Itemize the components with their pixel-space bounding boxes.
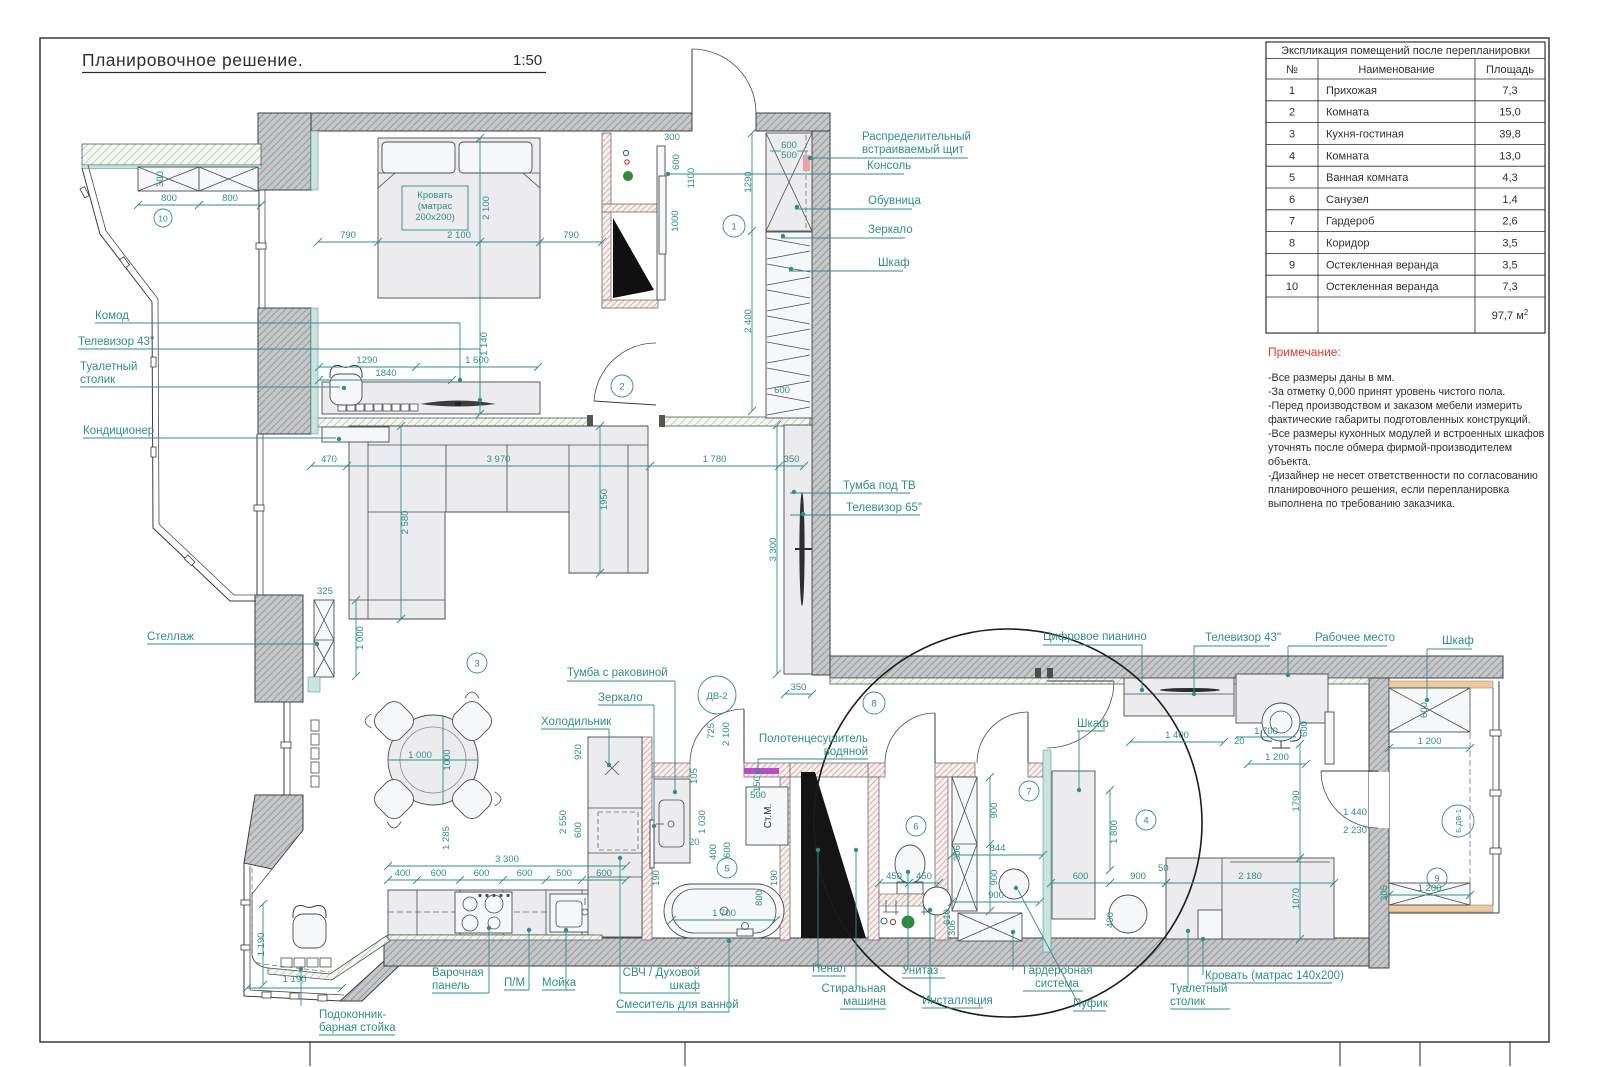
svg-text:фактические габариты подготовл: фактические габариты подготовленных конс… [1268, 414, 1531, 426]
svg-text:Тумба с раковиной: Тумба с раковиной [567, 667, 668, 679]
svg-text:Кровать: Кровать [417, 190, 452, 201]
svg-text:39,8: 39,8 [1499, 129, 1520, 141]
svg-text:2: 2 [619, 382, 624, 393]
svg-text:325: 325 [317, 586, 333, 597]
svg-text:1 285: 1 285 [441, 826, 452, 850]
svg-text:встраиваемый щит: встраиваемый щит [862, 144, 965, 156]
svg-text:7: 7 [1289, 216, 1295, 228]
svg-text:400: 400 [1105, 912, 1116, 928]
svg-text:Комната: Комната [1326, 150, 1370, 162]
svg-text:600: 600 [1299, 721, 1310, 737]
svg-text:400: 400 [708, 844, 719, 860]
svg-text:600: 600 [671, 154, 682, 170]
svg-text:790: 790 [340, 230, 356, 241]
svg-text:8: 8 [871, 699, 876, 710]
svg-text:Стеллаж: Стеллаж [147, 631, 194, 643]
svg-text:1 700: 1 700 [712, 908, 736, 919]
svg-text:1840: 1840 [375, 368, 396, 379]
svg-text:5: 5 [1289, 172, 1295, 184]
svg-text:Смеситель для ванной: Смеситель для ванной [616, 999, 739, 1011]
svg-text:1 000: 1 000 [355, 626, 366, 650]
svg-text:6: 6 [913, 822, 918, 833]
svg-text:Коридор: Коридор [1326, 238, 1369, 250]
svg-text:190: 190 [651, 870, 662, 886]
svg-text:барная стойка: барная стойка [319, 1022, 396, 1034]
svg-text:900: 900 [989, 803, 1000, 819]
svg-text:3: 3 [1289, 129, 1295, 141]
svg-text:470: 470 [321, 454, 337, 465]
svg-text:1290: 1290 [356, 355, 377, 366]
svg-text:1 000: 1 000 [408, 750, 432, 761]
svg-text:планировочного решения, если п: планировочного решения, если перепланиро… [1268, 484, 1509, 496]
svg-text:900: 900 [988, 890, 1004, 901]
svg-text:ДВ-2: ДВ-2 [706, 691, 727, 702]
svg-text:Пуфик: Пуфик [1073, 998, 1109, 1010]
svg-text:1:50: 1:50 [513, 52, 542, 69]
svg-text:600: 600 [474, 868, 490, 879]
svg-text:Б.ДВ-1: Б.ДВ-1 [1454, 809, 1463, 833]
svg-text:450: 450 [916, 871, 932, 882]
svg-text:-Перед производством и заказом: -Перед производством и заказом мебели из… [1268, 400, 1523, 412]
svg-text:600: 600 [431, 868, 447, 879]
svg-text:Телевизор 43": Телевизор 43" [1205, 632, 1281, 644]
svg-text:Полотенцесушитель: Полотенцесушитель [759, 733, 868, 745]
svg-text:2 230: 2 230 [1343, 825, 1367, 836]
svg-text:Цифровое пианино: Цифровое пианино [1043, 631, 1147, 643]
svg-text:1 400: 1 400 [1165, 730, 1189, 741]
svg-text:1 600: 1 600 [465, 355, 489, 366]
svg-text:Шкаф: Шкаф [878, 257, 910, 269]
svg-text:Телевизор 43": Телевизор 43" [78, 336, 154, 348]
svg-text:1 140: 1 140 [479, 332, 490, 356]
svg-text:800: 800 [754, 890, 765, 906]
svg-text:Планировочное решение.: Планировочное решение. [82, 50, 303, 70]
svg-text:600: 600 [517, 868, 533, 879]
svg-text:1 190: 1 190 [256, 933, 267, 957]
svg-text:2 100: 2 100 [481, 196, 492, 220]
svg-text:СВЧ / Духовой: СВЧ / Духовой [623, 967, 700, 979]
svg-text:10: 10 [1286, 281, 1298, 293]
svg-text:9: 9 [1434, 874, 1439, 885]
svg-text:20: 20 [689, 837, 700, 848]
svg-text:система: система [1035, 978, 1079, 990]
svg-text:1 200: 1 200 [1418, 736, 1442, 747]
svg-text:920: 920 [573, 744, 584, 760]
svg-text:500: 500 [750, 790, 766, 801]
svg-text:500: 500 [556, 868, 572, 879]
svg-text:Комната: Комната [1326, 107, 1370, 119]
svg-text:Остекленная веранда: Остекленная веранда [1326, 259, 1439, 271]
svg-text:(матрас: (матрас [418, 201, 453, 212]
svg-text:3: 3 [474, 659, 479, 670]
svg-text:1 030: 1 030 [697, 810, 708, 834]
svg-text:200х200): 200х200) [415, 212, 455, 223]
svg-text:Гардеробная: Гардеробная [1023, 965, 1093, 977]
svg-text:Экспликация помещений после пе: Экспликация помещений после перепланиров… [1281, 45, 1530, 57]
svg-text:1 190: 1 190 [283, 974, 307, 985]
svg-text:водяной: водяной [824, 746, 868, 758]
svg-text:97,7 м2: 97,7 м2 [1492, 308, 1529, 323]
svg-text:4: 4 [1289, 150, 1295, 162]
svg-text:Туалетный: Туалетный [80, 361, 137, 373]
svg-text:Распределительный: Распределительный [862, 131, 971, 143]
svg-text:2,6: 2,6 [1502, 216, 1517, 228]
svg-text:400: 400 [395, 868, 411, 879]
svg-text:190: 190 [769, 870, 780, 886]
svg-text:шкаф: шкаф [670, 980, 700, 992]
svg-text:столик: столик [1170, 996, 1206, 1008]
svg-text:уточнять после обмера фирмой-п: уточнять после обмера фирмой-производите… [1268, 442, 1512, 454]
svg-text:1100: 1100 [686, 168, 697, 188]
svg-text:Ст.М.: Ст.М. [763, 804, 774, 829]
svg-text:Санузел: Санузел [1326, 194, 1369, 206]
svg-text:800: 800 [161, 193, 177, 204]
svg-text:6: 6 [1289, 194, 1295, 206]
svg-text:1790: 1790 [1291, 790, 1302, 811]
svg-text:300: 300 [155, 171, 166, 187]
svg-text:Ванная комната: Ванная комната [1326, 172, 1409, 184]
svg-text:3,5: 3,5 [1502, 238, 1517, 250]
svg-text:4: 4 [1143, 816, 1148, 827]
svg-text:900: 900 [1130, 871, 1146, 882]
svg-text:1 700: 1 700 [1254, 726, 1278, 737]
svg-text:2 100: 2 100 [721, 722, 732, 746]
svg-text:305: 305 [1379, 885, 1390, 901]
svg-text:Тумба под ТВ: Тумба под ТВ [843, 480, 916, 492]
svg-text:1 800: 1 800 [1109, 820, 1120, 844]
svg-text:Холодильник: Холодильник [541, 716, 612, 728]
svg-text:Примечание:: Примечание: [1268, 345, 1341, 359]
svg-text:Туалетный: Туалетный [1170, 983, 1227, 995]
svg-text:Инсталляция: Инсталляция [922, 995, 993, 1007]
svg-text:600: 600 [722, 842, 733, 858]
svg-text:500: 500 [781, 150, 797, 161]
svg-text:2 580: 2 580 [400, 511, 411, 535]
svg-text:9: 9 [1289, 259, 1295, 271]
svg-text:20: 20 [1234, 736, 1245, 747]
svg-text:Консоль: Консоль [867, 160, 911, 172]
svg-text:3,5: 3,5 [1502, 259, 1517, 271]
svg-text:4,3: 4,3 [1502, 172, 1517, 184]
svg-text:50: 50 [1158, 863, 1169, 874]
svg-text:1950: 1950 [599, 489, 610, 510]
svg-text:Телевизор 65": Телевизор 65" [846, 502, 922, 514]
svg-text:450: 450 [886, 871, 902, 882]
svg-text:Прихожая: Прихожая [1326, 85, 1377, 97]
svg-text:1070: 1070 [1291, 888, 1302, 909]
svg-text:-За отметку 0,000 принят урове: -За отметку 0,000 принят уровень чистого… [1268, 386, 1505, 398]
svg-text:800: 800 [222, 193, 238, 204]
svg-text:600: 600 [1073, 871, 1089, 882]
svg-text:1 440: 1 440 [1343, 807, 1367, 818]
svg-text:600: 600 [1419, 702, 1430, 718]
svg-text:-Все размеры даны в мм.: -Все размеры даны в мм. [1268, 372, 1395, 384]
svg-text:Мойка: Мойка [542, 977, 577, 989]
svg-text:1: 1 [731, 222, 736, 233]
svg-text:Остекленная веранда: Остекленная веранда [1326, 281, 1439, 293]
svg-text:Обувница: Обувница [868, 195, 921, 207]
svg-text:10: 10 [158, 214, 168, 224]
svg-text:Рабочее место: Рабочее место [1315, 632, 1395, 644]
svg-text:Гардероб: Гардероб [1326, 216, 1374, 228]
svg-text:13,0: 13,0 [1499, 150, 1520, 162]
svg-text:выполнена по требованию заказч: выполнена по требованию заказчика. [1268, 498, 1455, 510]
svg-text:600: 600 [573, 822, 584, 838]
svg-text:3 970: 3 970 [487, 454, 511, 465]
svg-text:Комод: Комод [95, 310, 129, 322]
svg-text:Подоконник-: Подоконник- [319, 1009, 386, 1021]
svg-text:600: 600 [774, 385, 790, 396]
svg-text:844: 844 [990, 843, 1006, 854]
svg-text:Шкаф: Шкаф [1442, 635, 1474, 647]
svg-text:Стиральная: Стиральная [822, 983, 886, 995]
svg-text:350: 350 [784, 454, 800, 465]
svg-text:Кондиционер: Кондиционер [83, 425, 154, 437]
svg-text:306: 306 [947, 920, 958, 936]
svg-text:Кровать (матрас 140х200): Кровать (матрас 140х200) [1205, 970, 1344, 982]
svg-text:3 300: 3 300 [768, 538, 779, 562]
svg-text:1: 1 [1289, 85, 1295, 97]
svg-text:2 180: 2 180 [1238, 871, 1262, 882]
svg-text:2 100: 2 100 [447, 230, 471, 241]
svg-text:105: 105 [689, 768, 700, 784]
svg-text:2 550: 2 550 [558, 810, 569, 834]
svg-text:столик: столик [80, 374, 116, 386]
svg-text:объекта.: объекта. [1268, 456, 1311, 468]
svg-text:Зеркало: Зеркало [598, 692, 643, 704]
svg-text:Наименование: Наименование [1358, 64, 1434, 76]
svg-text:-Дизайнер не несет ответственн: -Дизайнер не несет ответственности по со… [1268, 470, 1538, 482]
svg-text:Пенал: Пенал [812, 963, 846, 975]
svg-text:600: 600 [596, 868, 612, 879]
svg-text:7: 7 [1026, 787, 1031, 798]
svg-text:350: 350 [791, 682, 807, 693]
svg-text:1 200: 1 200 [1265, 752, 1289, 763]
svg-text:Варочная: Варочная [432, 967, 484, 979]
svg-text:725: 725 [706, 723, 717, 739]
svg-text:1,4: 1,4 [1502, 194, 1517, 206]
svg-text:7,3: 7,3 [1502, 85, 1517, 97]
svg-text:900: 900 [989, 870, 1000, 886]
svg-text:790: 790 [563, 230, 579, 241]
svg-text:8: 8 [1289, 238, 1295, 250]
svg-text:2 400: 2 400 [743, 309, 754, 333]
svg-text:-Все размеры кухонных модулей: -Все размеры кухонных модулей и встроенн… [1268, 428, 1545, 440]
svg-text:Площадь: Площадь [1486, 64, 1534, 76]
svg-text:300: 300 [664, 132, 680, 143]
svg-text:П/М: П/М [504, 977, 525, 989]
svg-text:3 300: 3 300 [495, 854, 519, 865]
svg-text:5: 5 [724, 864, 729, 875]
svg-text:Унитаз: Унитаз [902, 965, 938, 977]
svg-text:панель: панель [432, 980, 470, 992]
svg-text:Кухня-гостиная: Кухня-гостиная [1326, 129, 1404, 141]
svg-text:7,3: 7,3 [1502, 281, 1517, 293]
svg-text:№: № [1286, 64, 1298, 76]
svg-text:2: 2 [1289, 107, 1295, 119]
svg-text:1290: 1290 [743, 171, 754, 192]
svg-text:15,0: 15,0 [1499, 107, 1520, 119]
svg-text:Зеркало: Зеркало [868, 224, 913, 236]
svg-text:1 780: 1 780 [703, 454, 727, 465]
svg-text:машина: машина [843, 996, 886, 1008]
svg-text:Шкаф: Шкаф [1077, 718, 1109, 730]
svg-text:306: 306 [952, 845, 963, 861]
svg-text:1000: 1000 [670, 210, 681, 231]
